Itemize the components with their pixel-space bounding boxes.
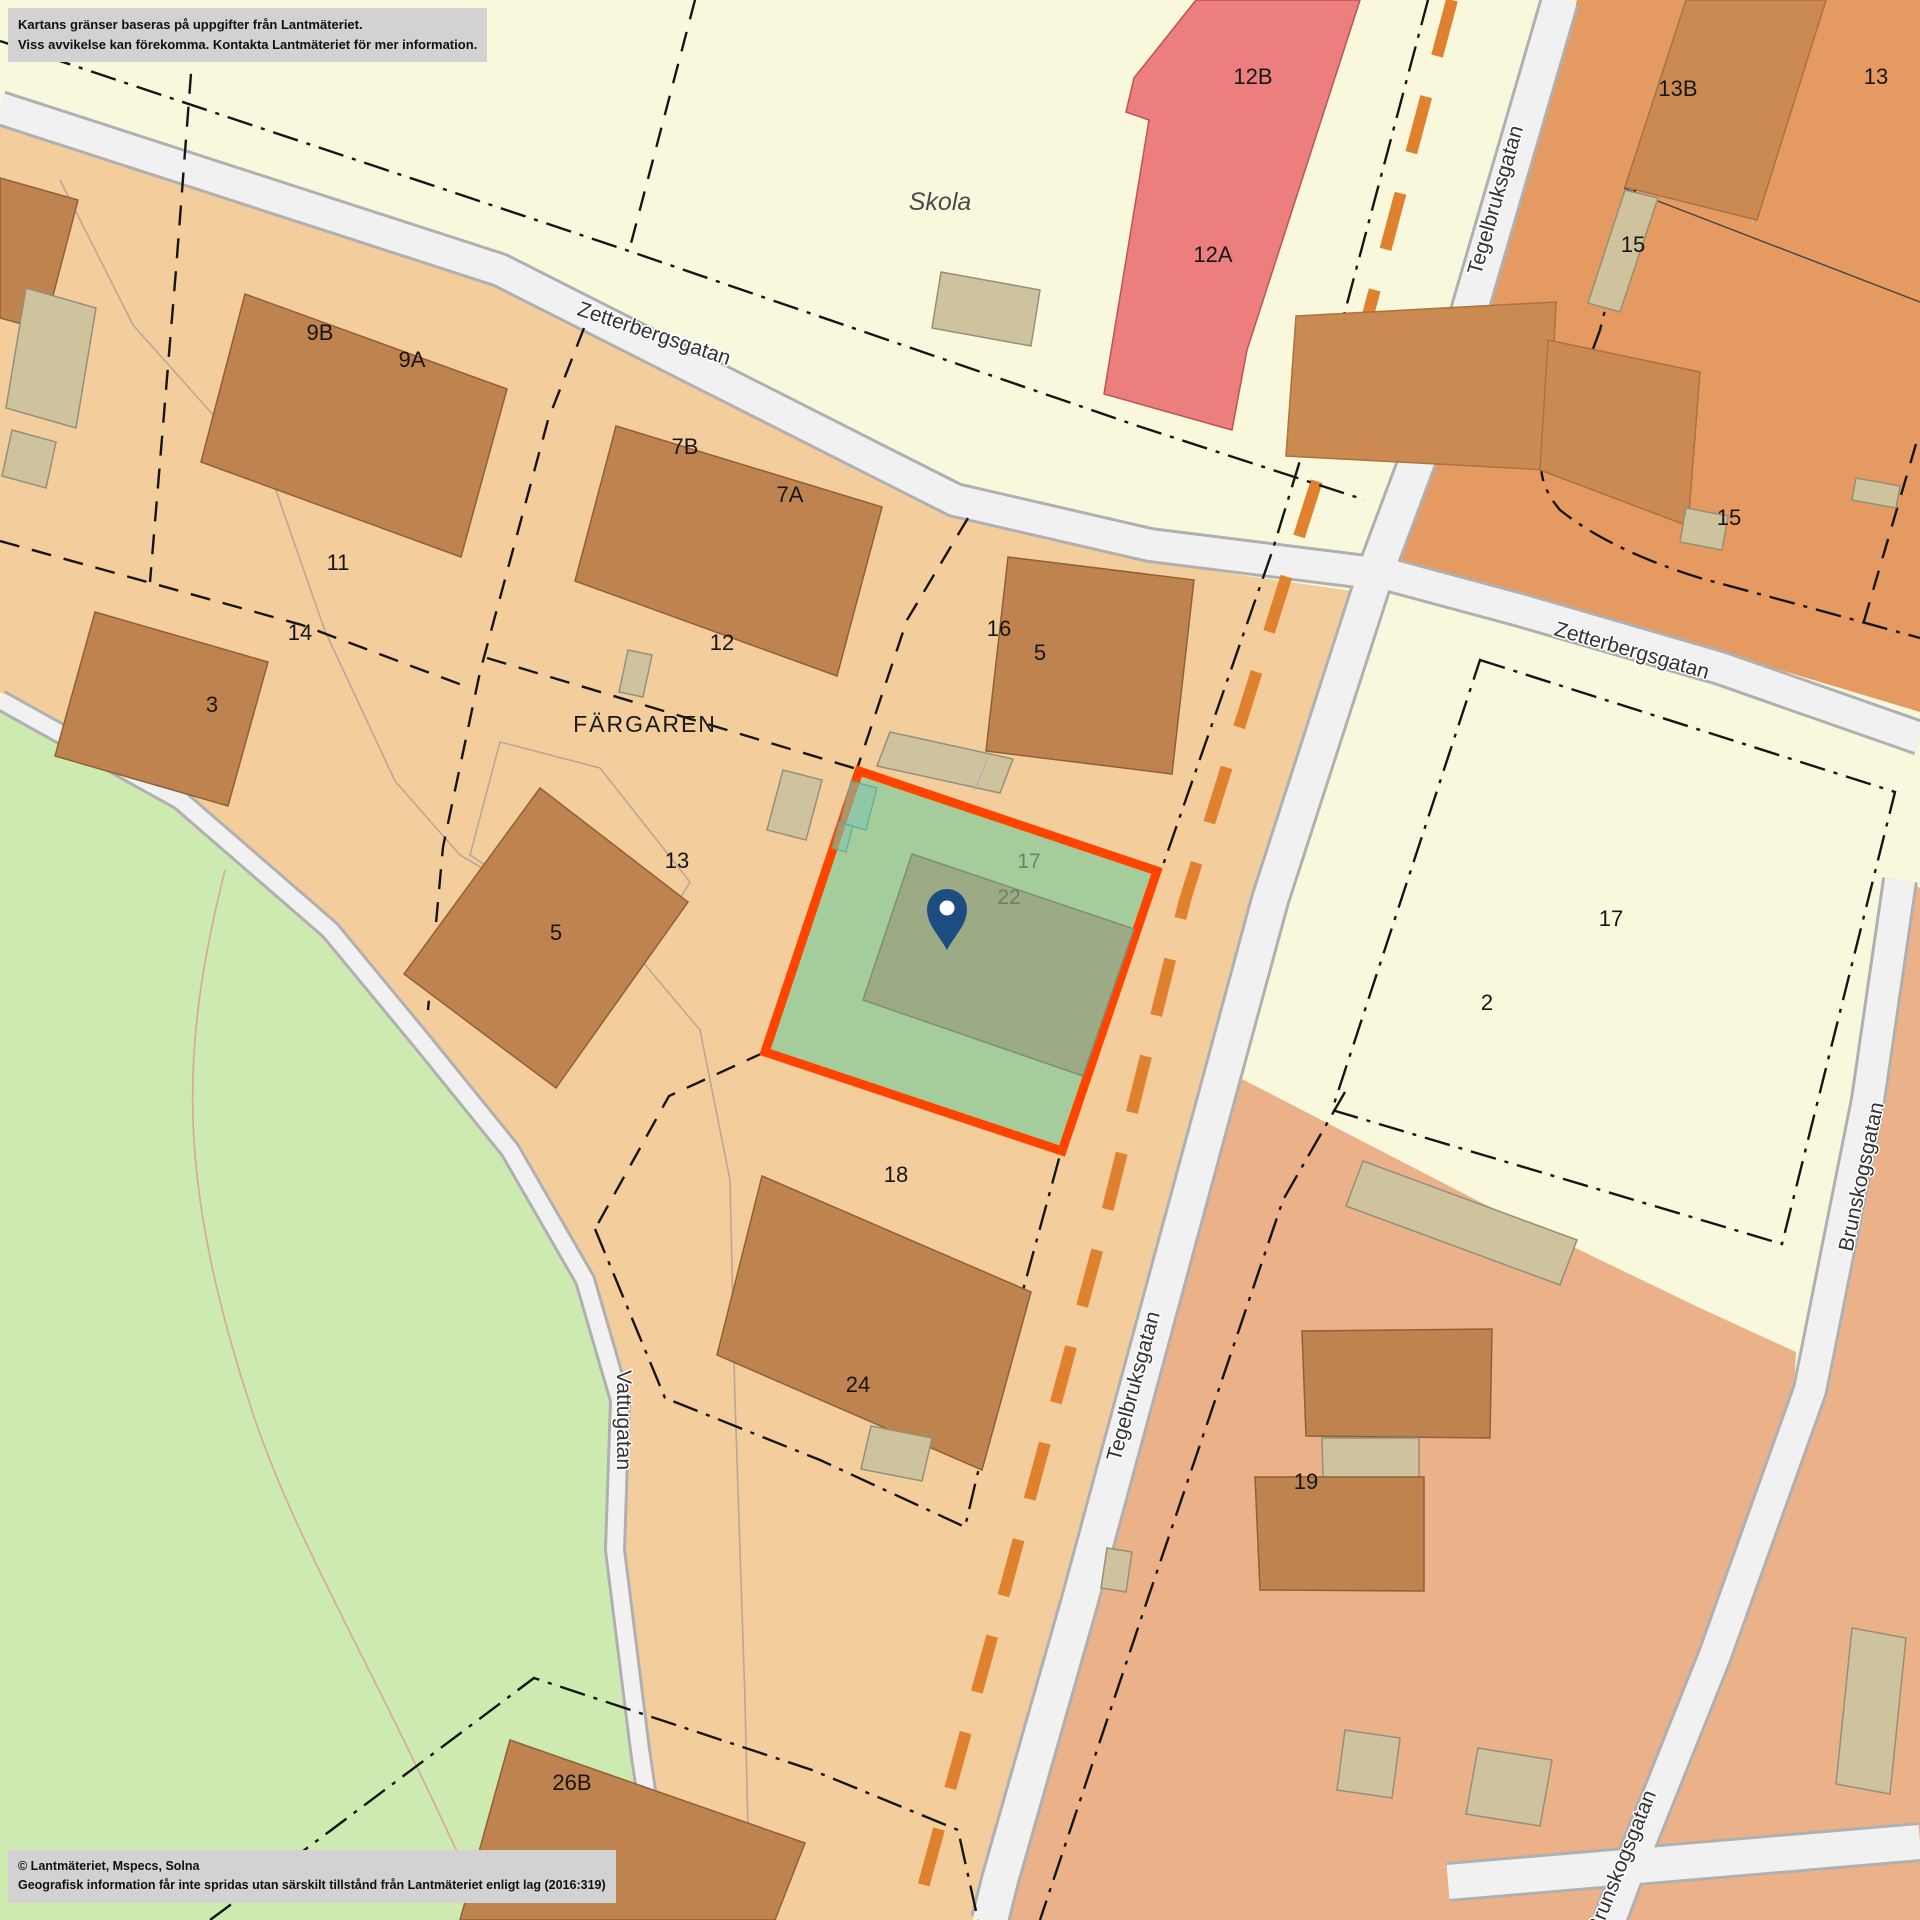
parcel-label-24: 24	[846, 1372, 870, 1397]
pin-marker-hole	[940, 901, 955, 916]
parcel-label-5-west: 5	[550, 920, 562, 945]
parcel-label-13-ne: 13	[1864, 64, 1888, 89]
block-name-label: FÄRGAREN	[573, 711, 717, 737]
attribution-line-1: © Lantmäteriet, Mspecs, Solna	[18, 1857, 606, 1876]
building-5-east	[986, 557, 1194, 774]
building-northeast-a	[1286, 302, 1556, 470]
parcel-label-13b: 13B	[1658, 76, 1697, 101]
parcel-label-5-east: 5	[1034, 640, 1046, 665]
parcel-label-13: 13	[665, 848, 689, 873]
building-19-south	[1255, 1477, 1424, 1591]
map-disclaimer: Kartans gränser baseras på uppgifter frå…	[8, 8, 487, 62]
tan-building-southeast-small	[1101, 1548, 1132, 1592]
parcel-label-12a: 12A	[1193, 242, 1232, 267]
building-19-connector	[1322, 1438, 1419, 1478]
parcel-label-7a: 7A	[777, 482, 804, 507]
map-attribution: © Lantmäteriet, Mspecs, Solna Geografisk…	[8, 1850, 616, 1903]
school-label: Skola	[909, 188, 972, 216]
parcel-label-9b: 9B	[307, 320, 334, 345]
map-canvas[interactable]: 9B 9A 7B 7A 11 14 12 3 16 5 13 5 18 24 2…	[0, 0, 1920, 1920]
parcel-label-9a: 9A	[399, 347, 426, 372]
tan-building-south-small	[1337, 1730, 1400, 1798]
parcel-label-2: 2	[1481, 990, 1493, 1015]
disclaimer-line-2: Viss avvikelse kan förekomma. Kontakta L…	[18, 35, 477, 55]
building-19-north	[1302, 1329, 1492, 1438]
tan-building-bottom	[1466, 1748, 1552, 1826]
map-viewport[interactable]: 9B 9A 7B 7A 11 14 12 3 16 5 13 5 18 24 2…	[0, 0, 1920, 1920]
street-label-vattugatan: Vattugatan	[612, 1370, 635, 1470]
parcel-label-16: 16	[987, 616, 1011, 641]
highlight-parcel-number: 17	[1017, 850, 1040, 873]
disclaimer-line-1: Kartans gränser baseras på uppgifter frå…	[18, 15, 477, 35]
parcel-label-14: 14	[288, 620, 312, 645]
parcel-label-3: 3	[206, 692, 218, 717]
parcel-label-15-lower: 15	[1717, 505, 1741, 530]
parcel-label-19: 19	[1294, 1469, 1318, 1494]
parcel-label-18: 18	[884, 1162, 908, 1187]
parcel-label-26b: 26B	[552, 1770, 591, 1795]
parcel-label-12b: 12B	[1233, 64, 1272, 89]
parcel-label-12: 12	[710, 630, 734, 655]
highlight-building-number: 22	[997, 886, 1020, 909]
parcel-label-17-east: 17	[1599, 906, 1623, 931]
attribution-line-2: Geografisk information får inte spridas …	[18, 1876, 606, 1895]
parcel-label-15-upper: 15	[1621, 232, 1645, 257]
parcel-label-7b: 7B	[672, 434, 699, 459]
parcel-label-11: 11	[327, 550, 350, 575]
